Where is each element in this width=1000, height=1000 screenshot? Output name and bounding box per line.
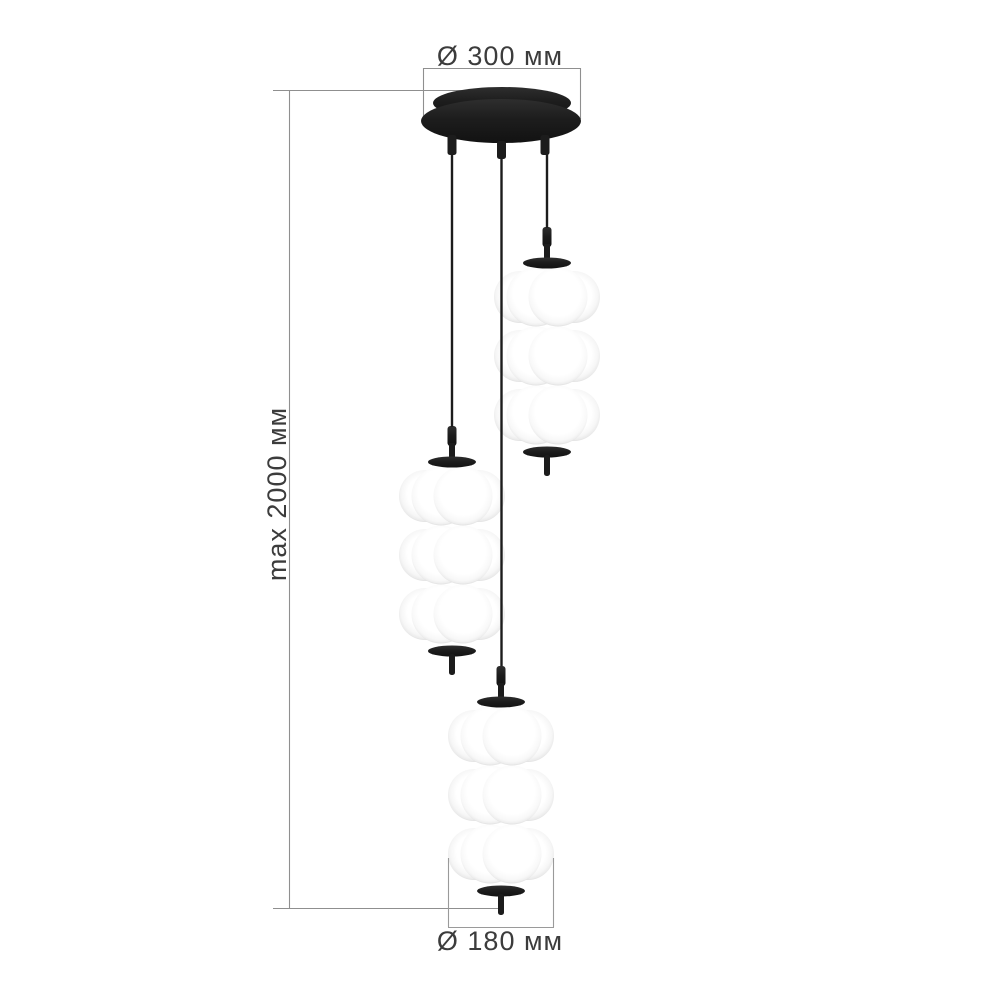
- pendant-shade-left: [399, 426, 505, 675]
- shade-diameter-label: Ø 180 мм: [389, 926, 611, 956]
- canopy-flange: [421, 99, 581, 143]
- max-height-label: max 2000 мм: [262, 407, 292, 581]
- canopy-diameter-label: Ø 300 мм: [389, 41, 611, 71]
- pendant-lamp-diagram: [0, 0, 1000, 1000]
- ceiling-canopy: [421, 87, 581, 159]
- pendant-shade-right: [494, 227, 600, 476]
- product-dimension-drawing: Ø 300 мм max 2000 мм Ø 180 мм: [0, 0, 1000, 1000]
- pendant-shade-bottom: [448, 666, 554, 915]
